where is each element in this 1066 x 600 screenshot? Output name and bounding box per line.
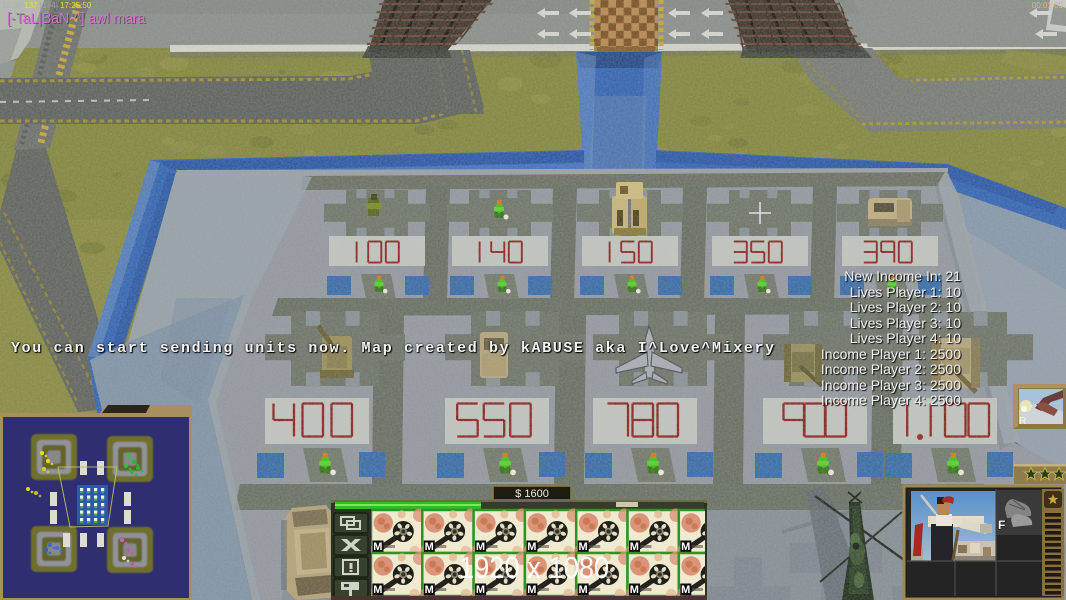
svg-text:M: M xyxy=(373,541,382,553)
svg-text:M: M xyxy=(681,541,690,553)
svg-text:R: R xyxy=(1019,415,1027,427)
svg-text:M: M xyxy=(425,584,434,596)
svg-text:M: M xyxy=(425,541,434,553)
svg-text:M: M xyxy=(681,584,690,596)
svg-text:F: F xyxy=(998,518,1005,532)
svg-text:M: M xyxy=(630,584,639,596)
svg-text:M: M xyxy=(630,541,639,553)
svg-text:$ 1600: $ 1600 xyxy=(515,488,549,500)
svg-text:M: M xyxy=(373,584,382,596)
